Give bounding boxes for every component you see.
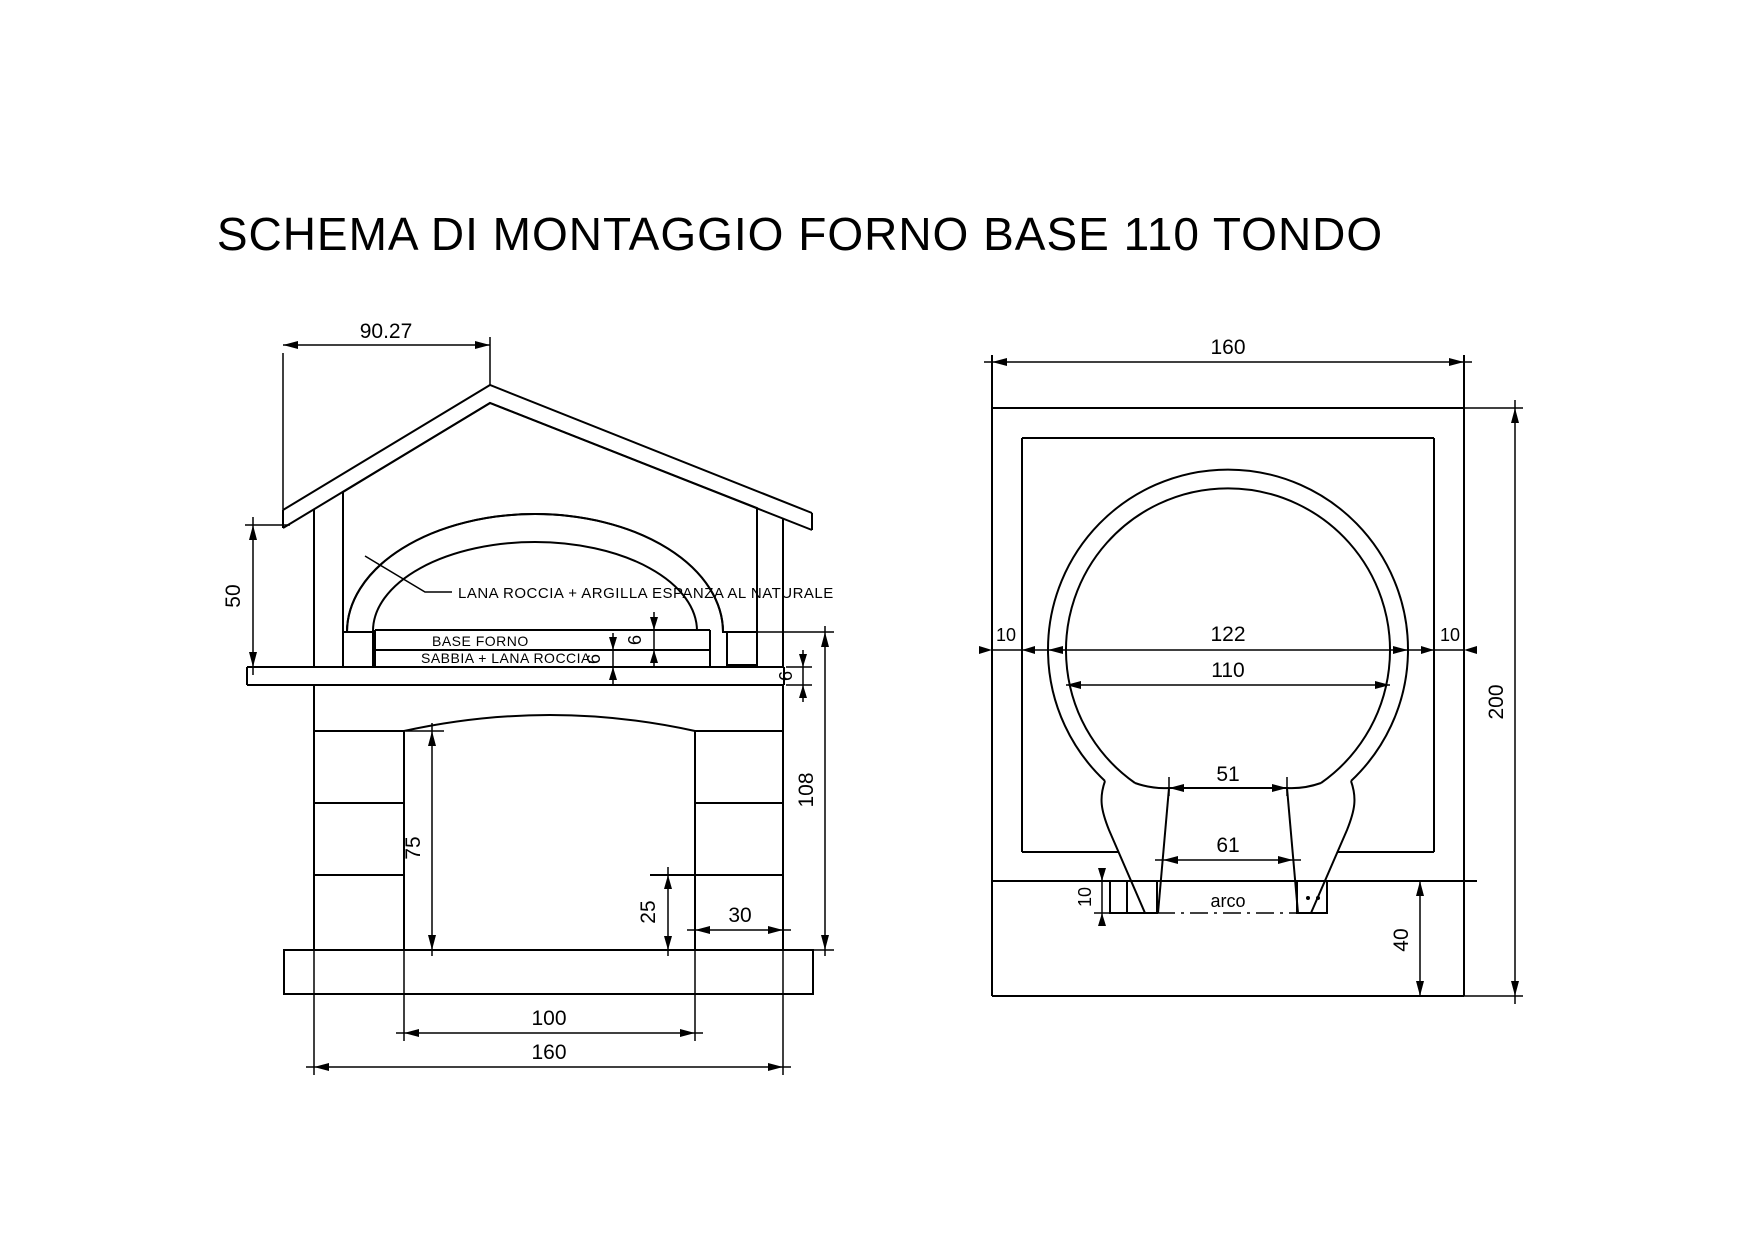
drawing-title: SCHEMA DI MONTAGGIO FORNO BASE 110 TONDO: [217, 208, 1383, 260]
dim-stand-height: 108: [795, 772, 818, 807]
plan-dim-total-width: 160: [1210, 336, 1245, 359]
sand-layer-label: SABBIA + LANA ROCCIA: [421, 650, 591, 666]
plan-dim-right-offset: 10: [1440, 625, 1460, 645]
plan-dim-mouth-outer: 61: [1216, 834, 1239, 857]
dim-roof-span: 90.27: [360, 320, 413, 343]
gable-right-foot-hatch: [727, 632, 757, 665]
dim-opening-width: 100: [531, 1007, 566, 1030]
plan-dim-arch-thickness: 10: [1075, 887, 1095, 907]
plan-dim-apron-depth: 40: [1390, 928, 1413, 951]
oven-assembly-drawing: SCHEMA DI MONTAGGIO FORNO BASE 110 TONDO: [0, 0, 1754, 1240]
gable-left-foot-hatch: [343, 632, 373, 667]
plan-view: arco 160 10 122 10 110 51: [979, 336, 1523, 1004]
front-elevation-view: BASE FORNO SABBIA + LANA ROCCIA LANA ROC…: [222, 320, 834, 1075]
plan-dim-outer-dome: 122: [1210, 623, 1245, 646]
dome-outer-arc: [347, 514, 723, 632]
technical-drawing-page: SCHEMA DI MONTAGGIO FORNO BASE 110 TONDO: [0, 0, 1754, 1240]
dim-total-width: 160: [531, 1041, 566, 1064]
plan-dim-total-depth: 200: [1485, 684, 1508, 719]
dim-pier-width: 30: [728, 904, 751, 927]
dim-sand-thickness: 6: [584, 654, 604, 664]
dim-ledge-height: 25: [637, 900, 660, 923]
arch-label: arco: [1210, 891, 1245, 911]
insulation-label: LANA ROCCIA + ARGILLA ESPANZA AL NATURAL…: [458, 585, 834, 602]
stand-structure: [314, 685, 783, 950]
plan-dimensions: 160 10 122 10 110 51 61 10: [979, 336, 1523, 1004]
dim-gable-height: 50: [222, 584, 245, 607]
plan-dim-inner-dome: 110: [1211, 659, 1244, 682]
oven-base-label: BASE FORNO: [432, 633, 529, 649]
ground-slab-hatched: [284, 950, 813, 994]
dim-slab-thickness: 6: [776, 671, 796, 681]
plan-dim-left-offset: 10: [996, 625, 1016, 645]
insulation-leader-line: [365, 556, 452, 592]
roof: [283, 385, 812, 530]
dim-opening-height: 75: [402, 836, 425, 859]
plan-dim-mouth-inner: 51: [1216, 763, 1239, 786]
dim-floor-thickness: 6: [625, 635, 645, 645]
